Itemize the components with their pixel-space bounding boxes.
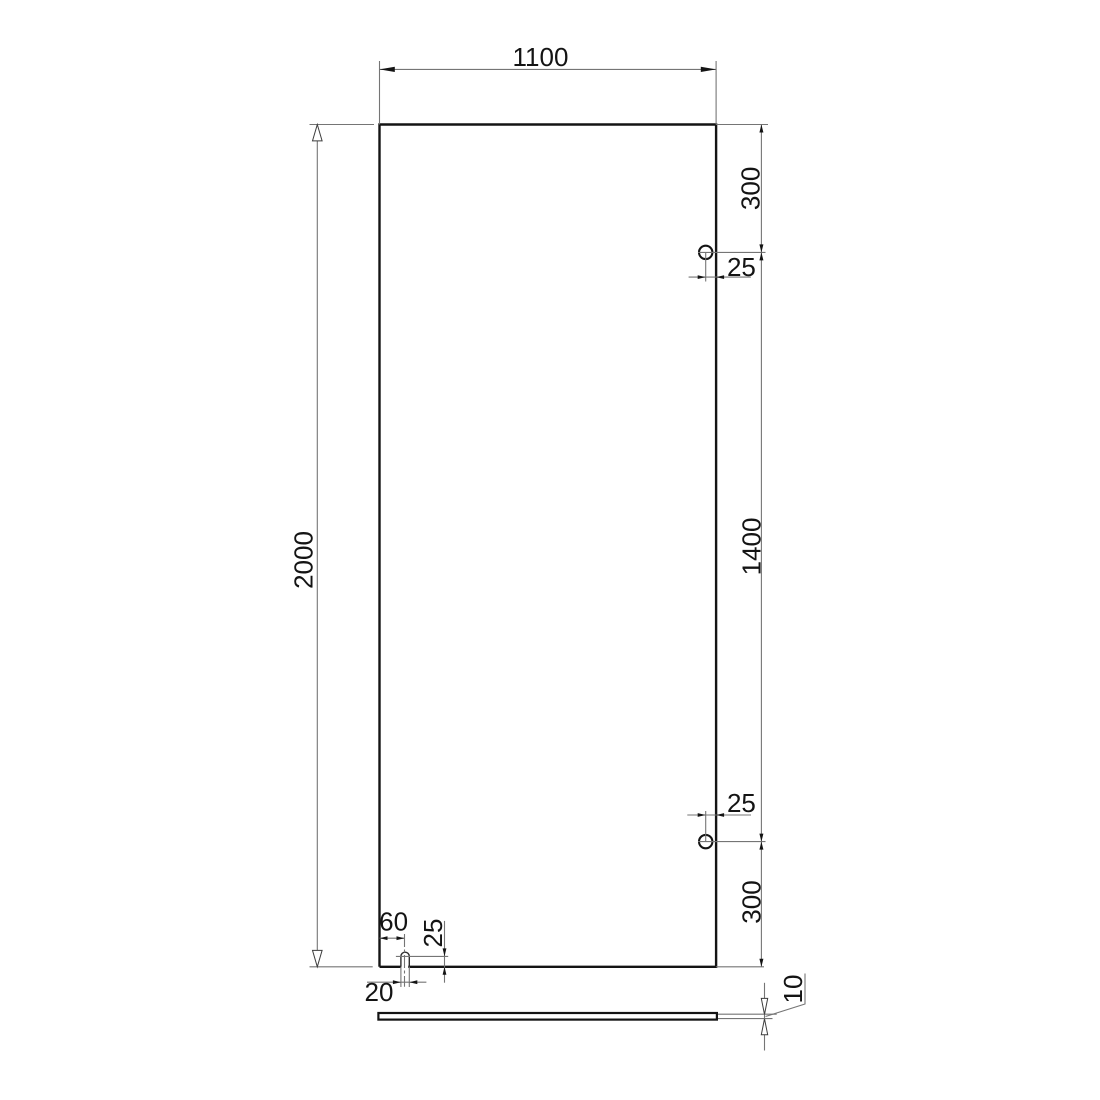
svg-text:25: 25 [418,919,448,948]
svg-text:2000: 2000 [289,531,319,589]
svg-text:25: 25 [727,788,756,818]
svg-text:1400: 1400 [737,518,767,576]
svg-text:60: 60 [379,907,408,937]
svg-text:1100: 1100 [513,42,569,72]
svg-text:300: 300 [736,167,766,210]
svg-text:10: 10 [778,975,808,1004]
svg-text:20: 20 [365,977,394,1007]
svg-text:300: 300 [737,880,767,923]
svg-text:25: 25 [727,252,756,282]
